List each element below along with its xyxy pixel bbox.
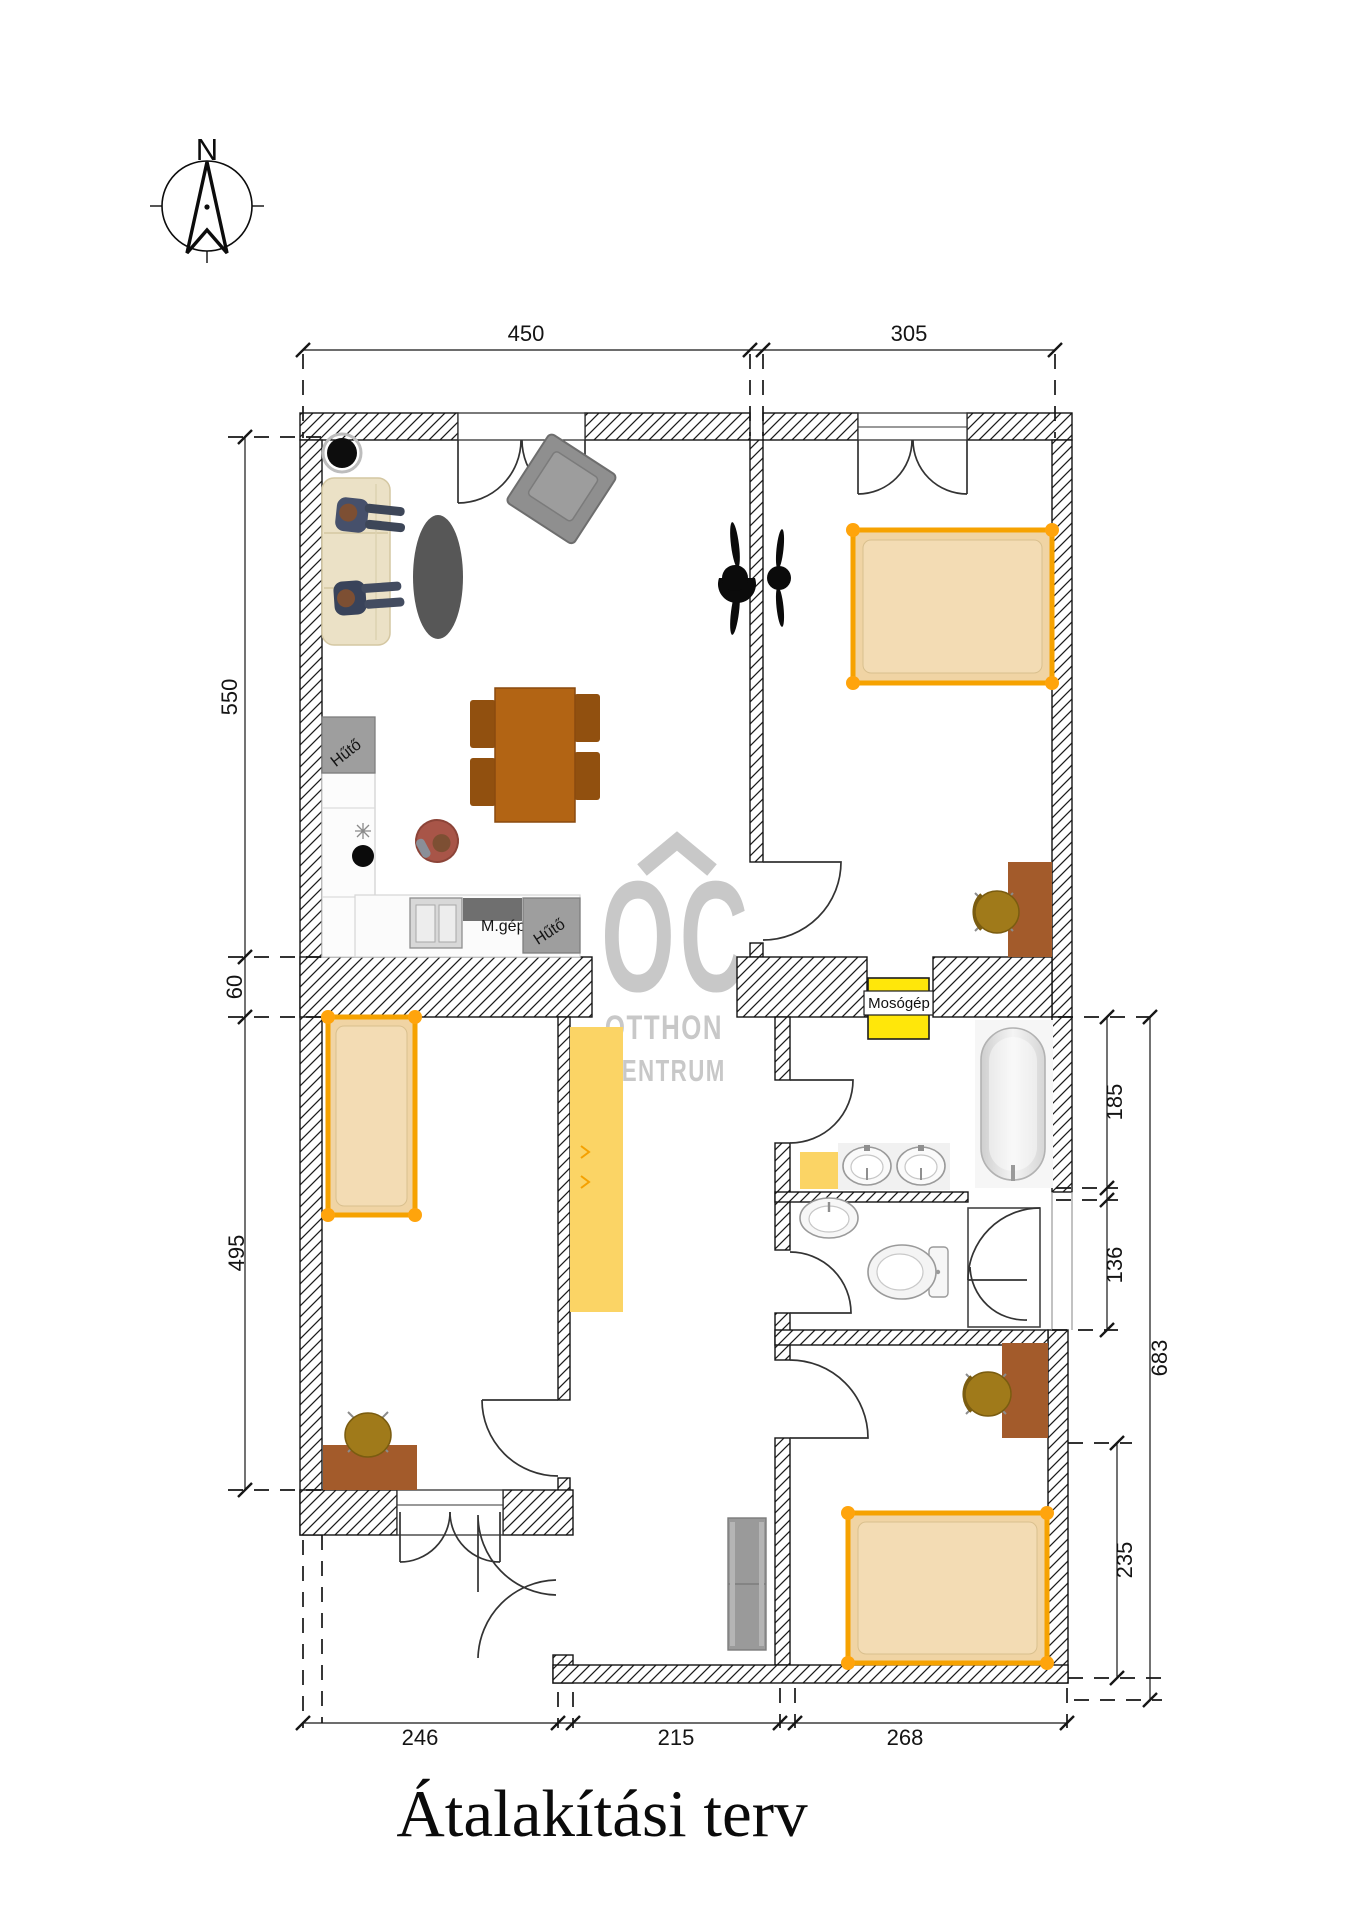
- entry-door-leaf-2: [478, 1580, 556, 1658]
- plant-pot: [327, 438, 357, 468]
- desk-chair: [965, 1372, 1011, 1416]
- dim-305: 305: [891, 321, 928, 346]
- sconce-leaf-icon: [774, 587, 785, 628]
- wc-room: [800, 1198, 948, 1299]
- dishwasher-label: M.gép: [481, 918, 526, 935]
- bed: [846, 523, 1059, 690]
- wall-living-bedroom-2: [750, 943, 763, 957]
- bathtub: [975, 1020, 1053, 1188]
- dim-268: 268: [887, 1725, 924, 1750]
- otthon-centrum-watermark: OC OTTHON CENTRUM: [601, 841, 753, 1088]
- wall-mid-2: [737, 957, 867, 1017]
- bedroom-bottom-left: [321, 1010, 422, 1490]
- bedroom-bottom-right: [841, 1343, 1054, 1670]
- floor-plan-canvas: OC OTTHON CENTRUM N: [0, 0, 1357, 1920]
- wall-mid-3: [933, 957, 1052, 1017]
- wall-bath-left-4: [775, 1438, 790, 1665]
- wall-top-3: [763, 413, 858, 440]
- kitchen-sink-unit: [410, 898, 462, 948]
- dining-chair: [470, 700, 496, 748]
- bedroom-tr-window-leaf-right: [913, 440, 967, 494]
- wall-mid-1: [300, 957, 592, 1017]
- corridor: [570, 1027, 766, 1650]
- wall-wc-bedroom: [775, 1330, 1048, 1345]
- page-title: Átalakítási terv: [396, 1777, 808, 1851]
- wall-top-2: [585, 413, 750, 440]
- wall-living-bedroom-1: [750, 440, 763, 862]
- desk-chair: [345, 1412, 391, 1457]
- bedroom-top-right: [846, 523, 1059, 957]
- dim-60: 60: [222, 975, 247, 999]
- sconce-leaf-icon: [728, 522, 742, 569]
- bed: [841, 1506, 1054, 1670]
- burner-circle-icon: [352, 845, 374, 867]
- bedroom-ll-door: [482, 1400, 558, 1476]
- dim-235: 235: [1112, 1542, 1137, 1579]
- wall-bath-left-1: [775, 1017, 790, 1080]
- wall-corridor-1: [558, 1017, 570, 1400]
- wardrobe: [570, 1027, 623, 1312]
- sconce-disc-icon: [767, 566, 791, 590]
- compass-center-dot: [204, 204, 209, 209]
- wall-right-lower: [1048, 1330, 1068, 1683]
- dim-683: 683: [1147, 1340, 1172, 1377]
- coffee-table: [413, 515, 463, 639]
- dim-136: 136: [1102, 1247, 1127, 1284]
- sconce-disc-icon: [722, 565, 748, 591]
- wall-right-bathroom: [1052, 1017, 1072, 1192]
- floor-plan-page: OC OTTHON CENTRUM N: [0, 0, 1357, 1920]
- bathroom-cabinet: [800, 1152, 838, 1189]
- vestibule-outline: [968, 1208, 1040, 1327]
- compass-north-label: N: [196, 132, 218, 167]
- dining-set: [470, 688, 600, 822]
- dining-chair: [574, 694, 600, 742]
- bedroom-tr-door: [763, 862, 841, 940]
- bedroom-br-door: [790, 1360, 868, 1438]
- sconce-leaf-icon: [774, 529, 785, 570]
- wc-door: [790, 1252, 851, 1313]
- dining-table: [495, 688, 575, 822]
- wall-top-1: [300, 413, 458, 440]
- wall-bedroom-ll-bottom-1: [300, 1490, 397, 1535]
- burner-star-icon: [355, 823, 371, 839]
- kitchen-person: [409, 813, 466, 870]
- wall-bottom: [553, 1665, 1068, 1683]
- dining-chair: [470, 758, 496, 806]
- living-balcony-door-opening: [458, 413, 585, 440]
- washing-machine-label: Mosógép: [868, 995, 930, 1012]
- dim-495: 495: [224, 1235, 249, 1272]
- wall-top-4: [967, 413, 1072, 440]
- wall-bath-wc: [775, 1192, 968, 1202]
- desk-chair: [975, 891, 1019, 933]
- double-washbasin: [838, 1143, 950, 1190]
- dim-450: 450: [508, 321, 545, 346]
- hall-bench: [728, 1518, 766, 1650]
- toilet: [868, 1245, 948, 1299]
- bathroom-door: [790, 1080, 853, 1143]
- dim-246: 246: [402, 1725, 439, 1750]
- watermark-monogram: OC: [601, 848, 753, 1025]
- wall-bedroom-ll-bottom-2: [503, 1490, 573, 1535]
- compass: N: [150, 132, 264, 263]
- dim-185: 185: [1102, 1084, 1127, 1121]
- dining-chair: [574, 752, 600, 800]
- bed: [321, 1010, 422, 1222]
- wc-sink: [800, 1198, 858, 1238]
- dim-550: 550: [217, 679, 242, 716]
- bedroom-tr-window-leaf-left: [858, 440, 912, 494]
- dim-215: 215: [658, 1725, 695, 1750]
